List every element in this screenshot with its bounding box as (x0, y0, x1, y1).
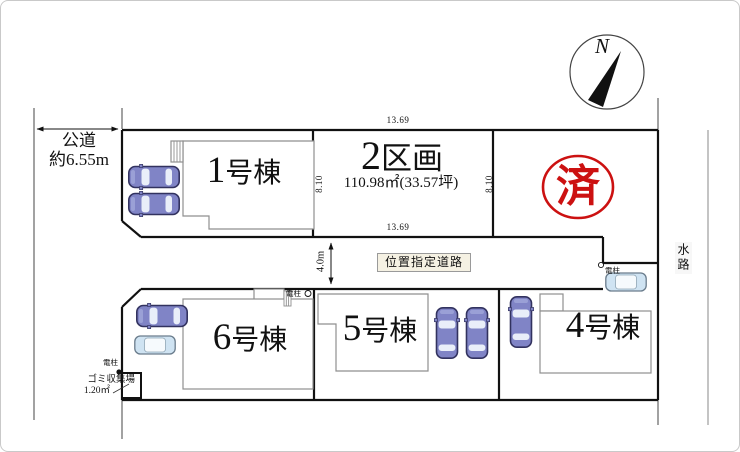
utility-pole-circle (598, 262, 603, 267)
dimension-top: 13.69 (378, 115, 418, 125)
utility-pole-circle (305, 291, 311, 297)
building-5-label: 5号棟 (319, 309, 441, 352)
building-6-label: 6号棟 (189, 318, 311, 361)
compass-n-label: N (595, 34, 621, 59)
utility-pole-label: 電柱 (103, 357, 118, 368)
dimension-right: 8.10 (484, 170, 494, 198)
utility-pole-label: 電柱 (286, 288, 301, 299)
public-road-label: 公道 約6.55m (37, 132, 121, 169)
public-road-width: 約6.55m (37, 151, 121, 170)
road-width-label: 4.0m (316, 245, 327, 279)
dimension-bottom: 13.69 (378, 222, 418, 232)
public-road-name: 公道 (37, 132, 121, 151)
utility-pole-dot (116, 369, 121, 374)
garbage-station-label: ゴミ収集場 1.20㎡ (59, 375, 135, 396)
site-plan-canvas: N 公道 約6.55m 13.69 13.69 8.10 8.10 2区画 11… (0, 0, 740, 452)
building-4-label: 4号棟 (542, 306, 664, 349)
utility-pole-label: 電柱 (605, 265, 620, 276)
road-name-label: 位置指定道路 (377, 253, 471, 272)
sold-stamp: 済 (550, 161, 606, 213)
waterway-label: 水路 (675, 242, 692, 274)
building-1-label: 1号棟 (183, 151, 305, 194)
lot2-area: 110.98㎡(33.57坪) (320, 171, 482, 192)
